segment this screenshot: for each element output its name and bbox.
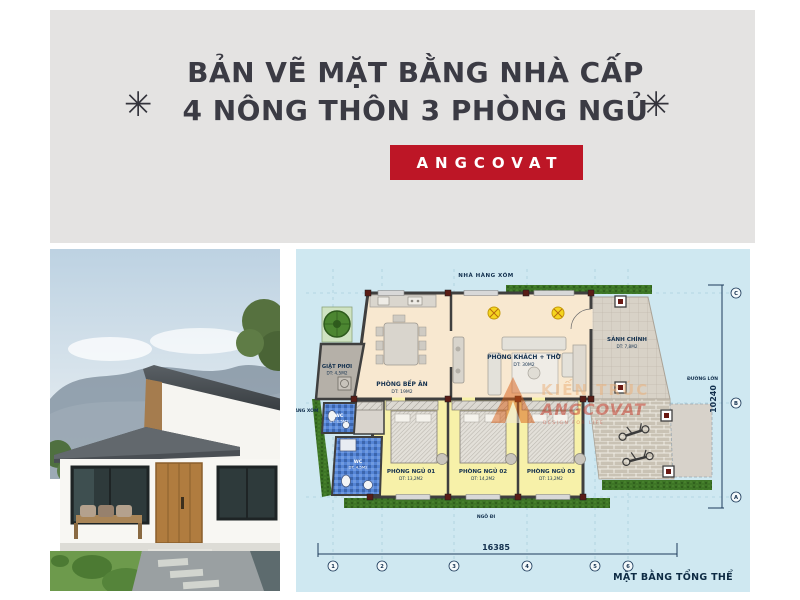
dim-height-label: 10240 bbox=[709, 385, 718, 413]
grid-bubble-3: 3 bbox=[452, 564, 456, 570]
room-area: DT: 30M2 bbox=[513, 362, 534, 368]
room-area: DT: 4,5M2 bbox=[348, 465, 368, 470]
title-banner: ✳ ✳ BẢN VẼ MẶT BẰNG NHÀ CẤP 4 NÔNG THÔN … bbox=[50, 10, 755, 243]
watermark-line2: ANGCOVAT bbox=[539, 400, 646, 419]
grid-bubble-A: A bbox=[734, 495, 738, 501]
room-area: DT: 13,2M2 bbox=[539, 476, 563, 481]
walkway-extension bbox=[670, 404, 712, 477]
brand-badge: ANGCOVAT bbox=[390, 145, 583, 180]
brand-label: ANGCOVAT bbox=[409, 154, 563, 172]
grid-bubble-4: 4 bbox=[525, 564, 529, 570]
room-label: PHÒNG NGỦ 01 bbox=[387, 467, 435, 475]
room-label: PHÒNG KHÁCH + THỜ bbox=[487, 354, 562, 361]
dim-width-label: 16385 bbox=[482, 543, 510, 552]
grid-bubble-6: 6 bbox=[626, 564, 630, 570]
grid-bubble-2: 2 bbox=[380, 564, 384, 570]
light-icon bbox=[488, 307, 500, 319]
kitchen-counter-icon bbox=[370, 295, 436, 307]
grid-bubble-1: 1 bbox=[331, 564, 335, 570]
room-area: DT: 14,2M2 bbox=[471, 476, 495, 481]
room-label: PHÒNG NGỦ 03 bbox=[527, 467, 575, 475]
tv-console-icon bbox=[453, 337, 464, 383]
poster-title-line1: BẢN VẼ MẶT BẰNG NHÀ CẤP bbox=[76, 54, 755, 92]
grid-bubbles-right: C B A bbox=[731, 288, 741, 502]
light-icon bbox=[552, 307, 564, 319]
grid-bubble-B: B bbox=[734, 401, 738, 407]
room-area: DT: 13,2M2 bbox=[399, 476, 423, 481]
watermark-line1: KIẾN TRÚC bbox=[541, 378, 649, 399]
room-area: DT: 1,5M2 bbox=[329, 419, 349, 424]
house-photo bbox=[50, 249, 280, 591]
floor-plan: PHÒNG BẾP ĂN DT: 19M2 PHÒNG KHÁCH + THỜ … bbox=[296, 249, 750, 592]
watermark: KIẾN TRÚC ANGCOVAT DESIGN FOR LIFE bbox=[491, 377, 649, 426]
grid-bubble-C: C bbox=[734, 291, 738, 297]
neighbor-top-label: NHÀ HÀNG XÓM bbox=[458, 272, 513, 279]
watermark-line3: DESIGN FOR LIFE bbox=[543, 420, 604, 426]
room-area: DT: 7,8M2 bbox=[616, 344, 637, 349]
hedge-bottom-right bbox=[602, 480, 712, 490]
grid-bubble-5: 5 bbox=[593, 564, 597, 570]
grid-bubbles-bottom: 1 2 3 4 5 6 bbox=[328, 561, 633, 571]
tree-icon bbox=[324, 311, 350, 337]
room-area: DT: 4,5M2 bbox=[326, 371, 347, 376]
road-right-label: ĐƯỜNG LỚN bbox=[687, 375, 718, 382]
photo-clerestory bbox=[144, 379, 162, 435]
room-label: PHÒNG BẾP ĂN bbox=[376, 380, 427, 388]
poster: ✳ ✳ BẢN VẼ MẶT BẰNG NHÀ CẤP 4 NÔNG THÔN … bbox=[0, 0, 800, 600]
poster-title-line2: 4 NÔNG THÔN 3 PHÒNG NGỦ bbox=[76, 92, 755, 130]
room-label: GIẶT PHƠI bbox=[322, 363, 352, 370]
neighbor-left-label: NHÀ HÀNG XÓM bbox=[296, 407, 319, 414]
poster-title: BẢN VẼ MẶT BẰNG NHÀ CẤP 4 NÔNG THÔN 3 PH… bbox=[50, 54, 755, 130]
alley-bottom-label: NGÕ ĐI bbox=[477, 513, 496, 520]
room-label: SẢNH CHÍNH bbox=[607, 335, 647, 343]
plan-caption: MẶT BẰNG TỔNG THỂ bbox=[613, 570, 733, 583]
room-label: PHÒNG NGỦ 02 bbox=[459, 467, 507, 475]
room-area: DT: 19M2 bbox=[391, 389, 412, 395]
